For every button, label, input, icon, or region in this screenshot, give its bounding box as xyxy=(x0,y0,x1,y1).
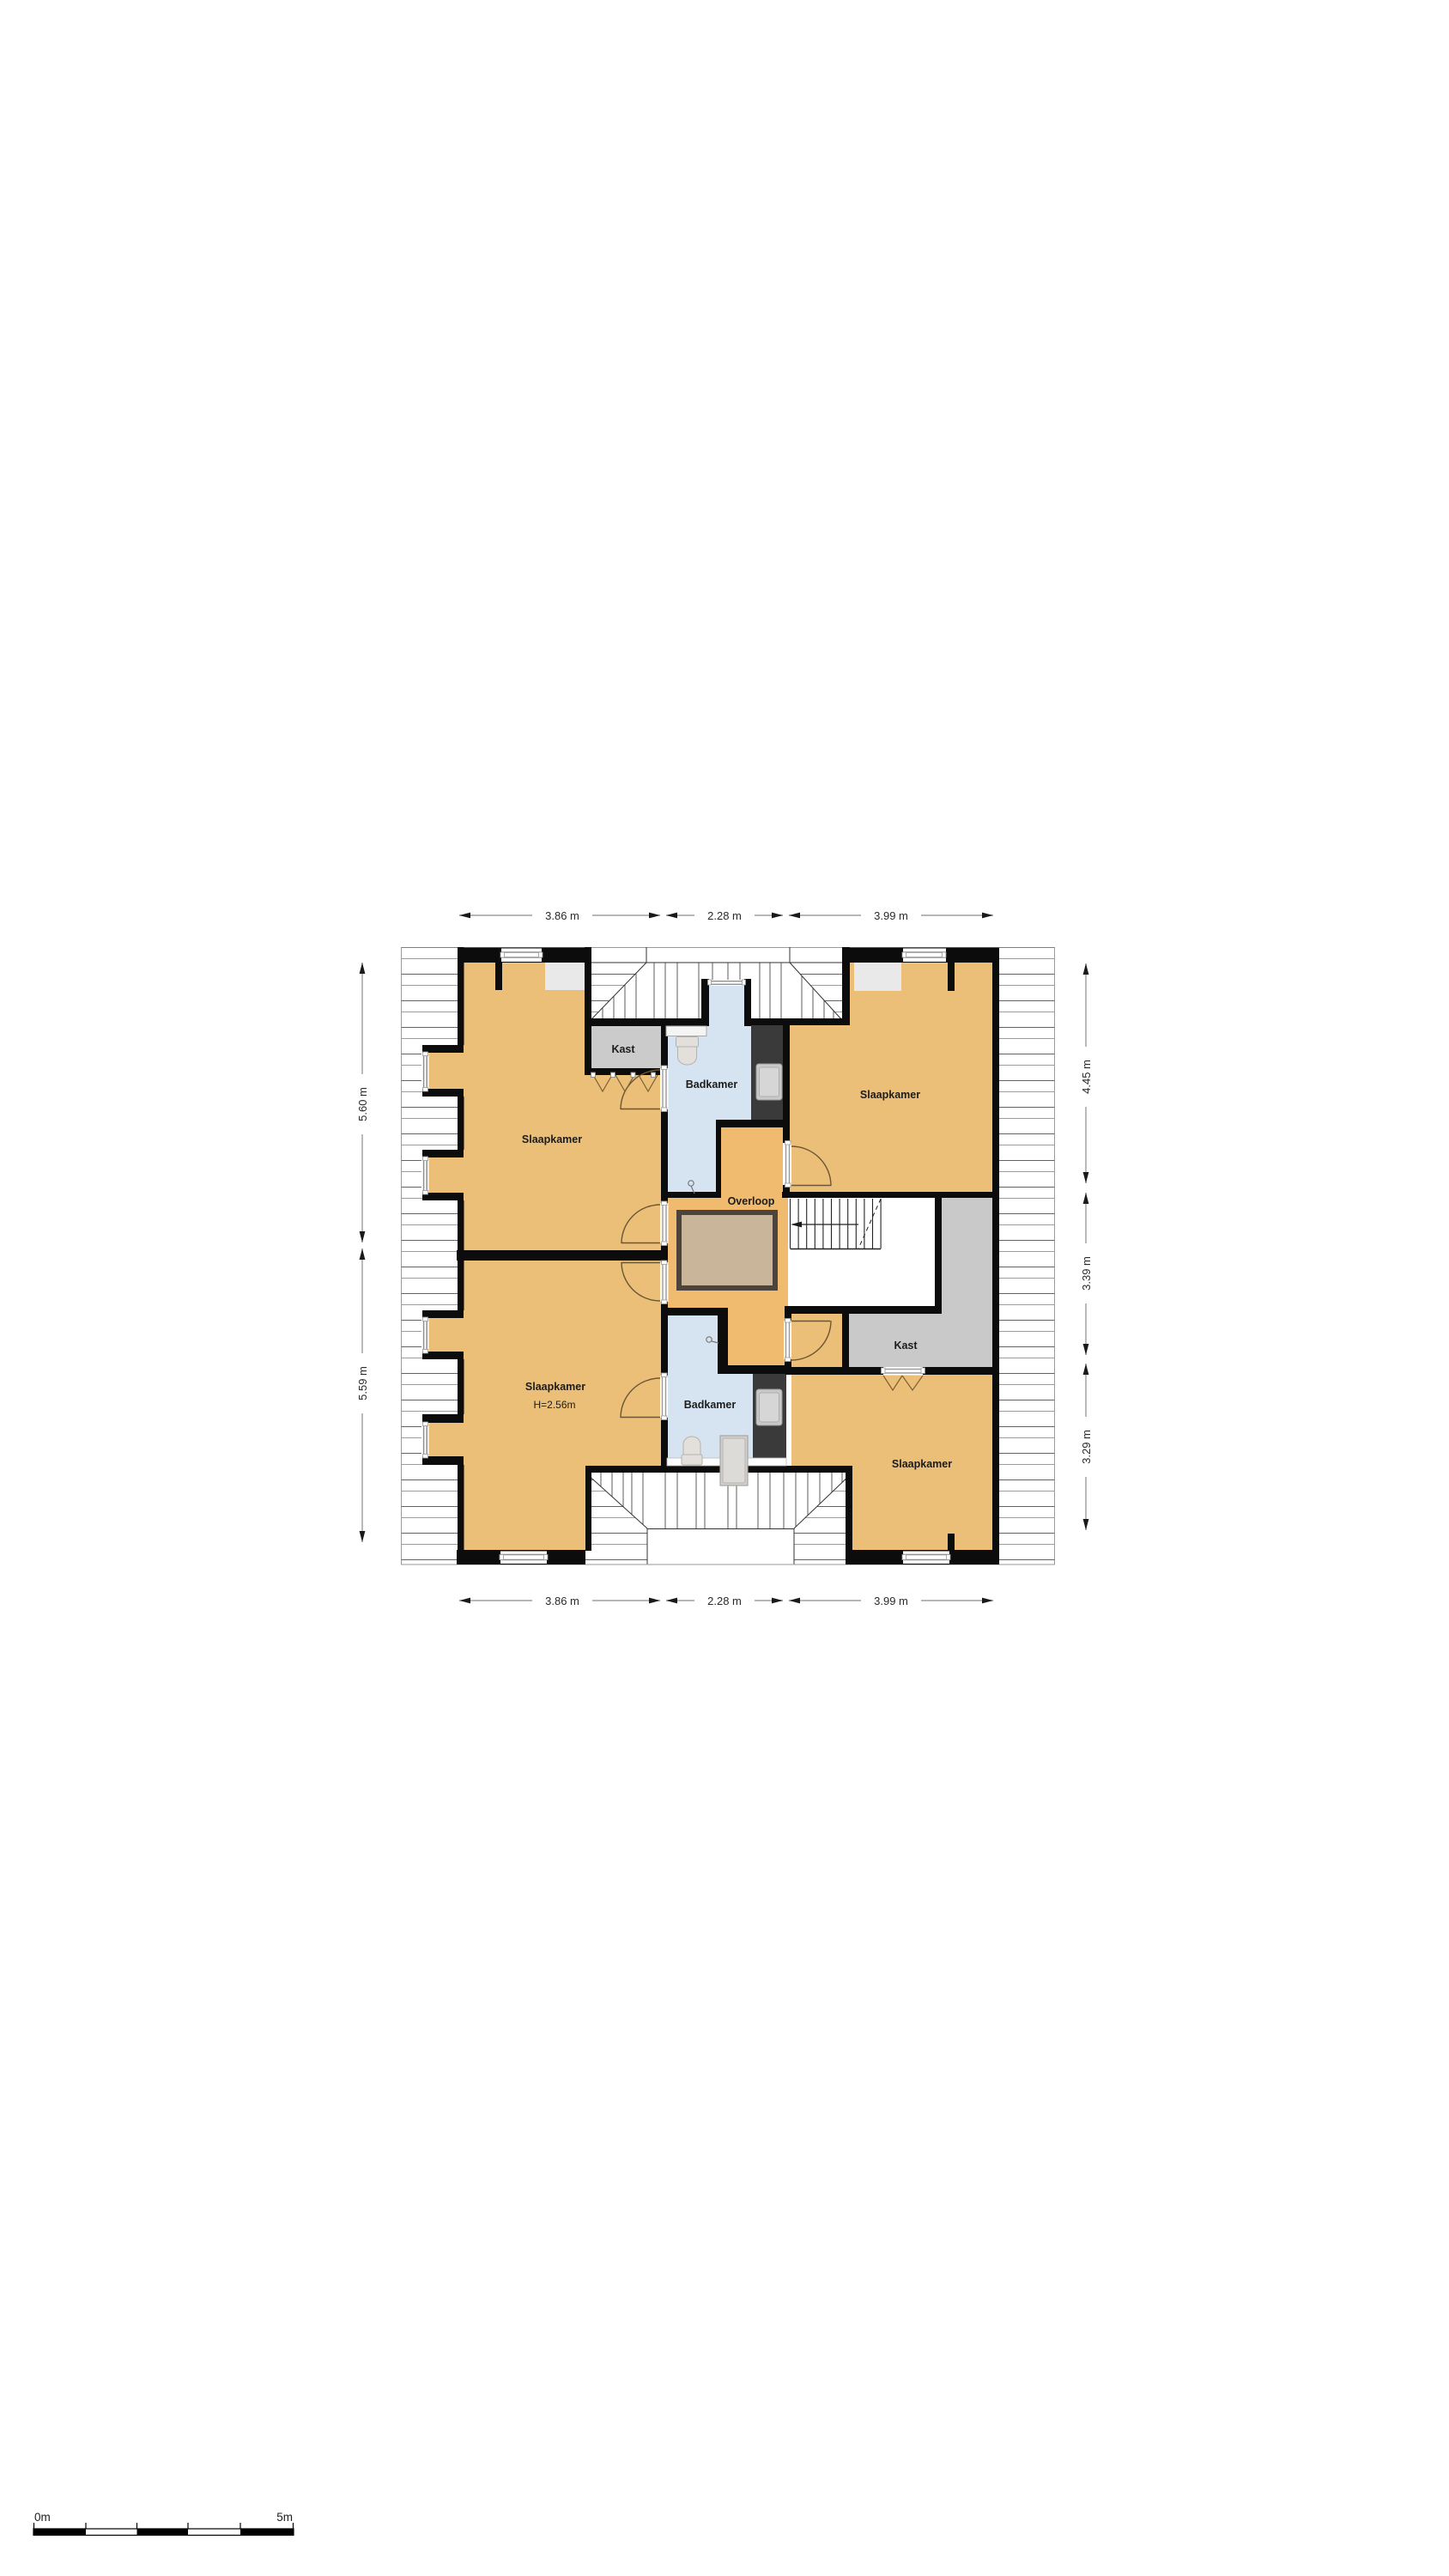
svg-text:2.28 m: 2.28 m xyxy=(707,1595,742,1607)
svg-text:0m: 0m xyxy=(34,2511,51,2524)
svg-text:3.86 m: 3.86 m xyxy=(545,909,579,922)
svg-text:3.99 m: 3.99 m xyxy=(874,1595,908,1607)
svg-text:Slaapkamer: Slaapkamer xyxy=(892,1458,952,1470)
svg-text:Slaapkamer: Slaapkamer xyxy=(525,1381,585,1393)
svg-text:5.59 m: 5.59 m xyxy=(356,1366,369,1400)
svg-text:3.86 m: 3.86 m xyxy=(545,1595,579,1607)
svg-text:3.99 m: 3.99 m xyxy=(874,909,908,922)
svg-text:H=2.56m: H=2.56m xyxy=(533,1399,575,1411)
svg-text:5m: 5m xyxy=(276,2511,293,2524)
svg-text:4.45 m: 4.45 m xyxy=(1080,1060,1093,1094)
svg-text:Kast: Kast xyxy=(611,1043,635,1055)
svg-text:Slaapkamer: Slaapkamer xyxy=(522,1133,582,1145)
svg-text:Slaapkamer: Slaapkamer xyxy=(860,1089,920,1101)
svg-text:Kast: Kast xyxy=(894,1340,918,1352)
svg-text:5.60 m: 5.60 m xyxy=(356,1087,369,1121)
svg-text:2.28 m: 2.28 m xyxy=(707,909,742,922)
svg-text:Badkamer: Badkamer xyxy=(684,1399,737,1411)
svg-text:3.39 m: 3.39 m xyxy=(1080,1256,1093,1291)
svg-text:3.29 m: 3.29 m xyxy=(1080,1430,1093,1464)
svg-text:Overloop: Overloop xyxy=(728,1195,775,1207)
svg-text:Badkamer: Badkamer xyxy=(686,1078,738,1091)
